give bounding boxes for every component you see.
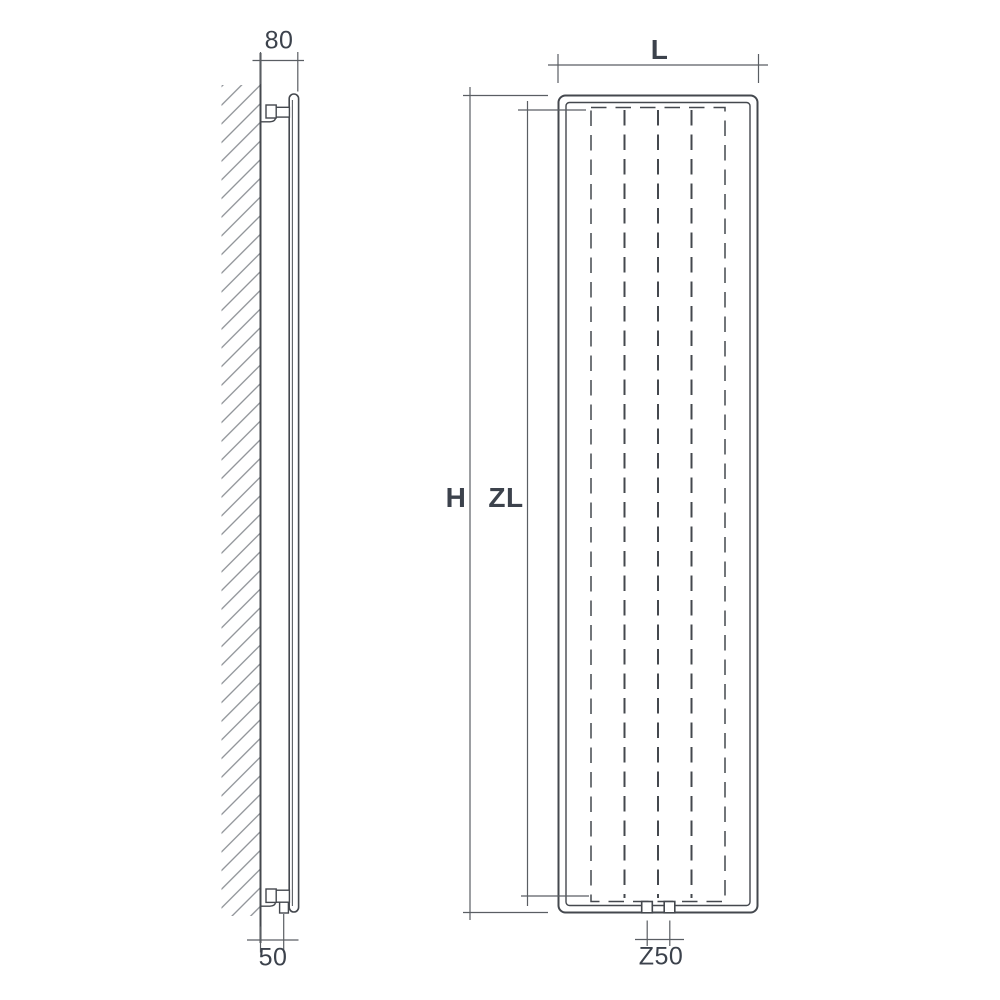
top-bracket-clip	[266, 105, 276, 118]
bottom-bracket-pin	[280, 902, 289, 913]
radiator-panel-side	[289, 94, 298, 912]
technical-drawing-canvas: 80 50 L H ZL Z50	[0, 0, 1000, 1000]
dimension-label-Z50: Z50	[639, 945, 684, 970]
connection-left	[642, 902, 653, 913]
top-bracket-hook	[260, 118, 276, 122]
dimension-label-L: L	[651, 36, 669, 64]
dimension-label-50: 50	[259, 946, 288, 971]
bottom-bracket-arm	[276, 890, 289, 902]
dimension-label-H: H	[446, 484, 467, 512]
bottom-bracket-clip	[266, 889, 276, 902]
bottom-bracket-hook	[260, 903, 276, 907]
side-view	[222, 52, 305, 953]
top-bracket	[260, 105, 290, 122]
top-bracket-arm	[276, 107, 289, 117]
fin-structure	[591, 108, 725, 902]
dimension-label-ZL: ZL	[488, 484, 523, 512]
dimension-ZL-inner-height	[518, 101, 589, 906]
dimension-label-80: 80	[265, 29, 294, 54]
bottom-bracket	[260, 889, 290, 913]
wall-hatching	[222, 85, 261, 916]
connection-right	[664, 902, 675, 913]
